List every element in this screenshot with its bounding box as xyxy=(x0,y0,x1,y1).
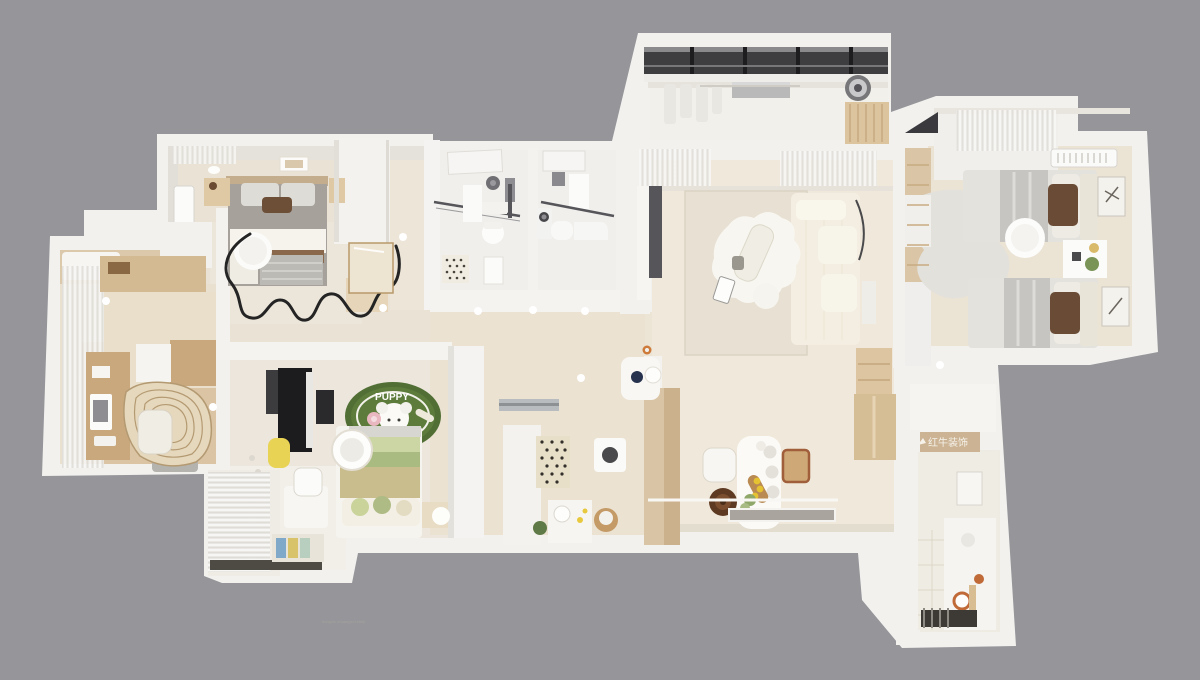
svg-text:红牛装饰: 红牛装饰 xyxy=(928,436,968,449)
svg-text:PUPPY: PUPPY xyxy=(375,392,409,403)
svg-text:hongniu zhuangshi sheji: hongniu zhuangshi sheji xyxy=(322,619,365,624)
